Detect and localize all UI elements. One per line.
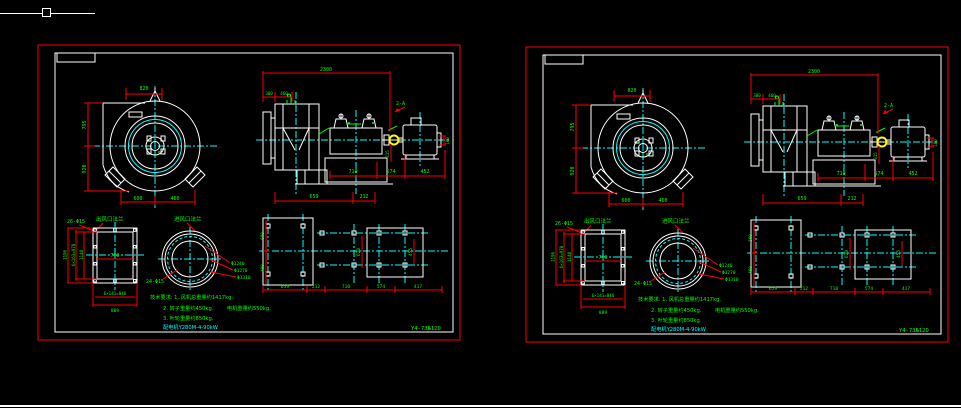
dim-label: 795	[570, 122, 576, 131]
sheet-frame	[526, 47, 948, 342]
dim-label: 1196	[63, 249, 68, 260]
dim-label: 795	[82, 120, 88, 129]
dim-label: 212	[359, 194, 368, 200]
inlet-flange-view: 进风口法兰 24-Φ15 Φ1240 Φ1270 Φ1310	[634, 217, 739, 293]
note-line-motor: 配电机Y280M-4-90kW	[163, 323, 218, 331]
foundation-dimensions: 659 212 710 574 417 600 400 620 455	[748, 222, 930, 295]
dim-label: 300	[753, 93, 761, 98]
sheet-title-label: Y4-73№12D	[899, 328, 929, 334]
note-line: 技术要求: 1. 风机总重量约1417kg.	[638, 295, 721, 303]
outlet-flange-view: 26-Φ15 出风口法兰 1196	[63, 215, 145, 314]
sheet-title-label: Y4-73№12D	[411, 326, 441, 332]
section-mark-label: 2-A	[884, 103, 893, 109]
dim-label: 574	[377, 284, 385, 290]
section-mark-label: 2-A	[396, 101, 405, 107]
window-bottom-edge	[0, 405, 961, 407]
dim-label: 659	[769, 286, 777, 292]
view-label: 进风口法兰	[662, 217, 690, 225]
sheet-frame	[38, 45, 460, 340]
dim-label: 710	[342, 284, 350, 290]
view-label: 出风口法兰	[96, 215, 124, 223]
dim-label: 820	[627, 88, 636, 94]
note-line: 电机重量约550kg.	[715, 306, 759, 314]
dim-label: Φ1310	[237, 275, 251, 281]
dim-label: 710	[836, 171, 845, 177]
holes-label: 24-Φ15	[634, 281, 652, 287]
dim-label: 889	[599, 310, 607, 316]
dim-label: 920	[570, 166, 576, 175]
dim-label: 659	[281, 284, 289, 290]
dim-label: 6×163=978	[559, 245, 564, 268]
dim-label: 6×163=978	[71, 243, 76, 266]
dim-label: Φ1240	[231, 261, 245, 267]
dim-label: 455	[896, 250, 902, 258]
view-label: 出风口法兰	[584, 217, 612, 225]
note-line-motor: 配电机Y280M-4-90kW	[651, 325, 706, 333]
dim-label: Φ1270	[722, 270, 736, 276]
dim-label: 315	[385, 150, 390, 158]
note-line: 3. 叶轮重量约850kg.	[651, 316, 702, 324]
note-line: 2. 转子重量约450kg.	[651, 306, 702, 314]
dim-label: 452	[420, 169, 429, 175]
dim-label: 6×141=846	[592, 293, 615, 298]
dim-label: 2300	[808, 69, 820, 75]
dim-label: Φ1240	[719, 263, 733, 269]
dim-label: 600	[621, 198, 630, 204]
outlet-flange-view: 26-Φ15 出风口法兰 1196	[551, 217, 633, 316]
note-line: 技术要求: 1. 风机总重量约1417kg.	[150, 293, 233, 301]
drawing-sheet-left: 820 795 920 600 460	[37, 44, 461, 342]
note-line: 2. 转子重量约450kg.	[163, 304, 214, 312]
dim-label: 659	[309, 194, 318, 200]
foundation-plan-view: 659 212 710 574 417 600 400 620 455	[259, 214, 449, 293]
dim-label: 574	[865, 286, 873, 292]
dim-label: 710	[830, 286, 838, 292]
dim-label: 6×141=846	[104, 291, 127, 296]
dim-label: 889	[111, 308, 119, 314]
dim-label: 460	[768, 93, 776, 98]
dim-label: 315	[873, 152, 878, 160]
dim-label: 417	[902, 286, 910, 292]
dim-label: 820	[139, 86, 148, 92]
dim-label: 455	[408, 248, 414, 256]
side-view-dimensions: 2300 300 460 2-A 315 100 710 574 452	[751, 69, 938, 206]
dim-label: 460	[280, 91, 288, 96]
dim-label: 2300	[320, 67, 332, 73]
holes-label: 24-Φ15	[146, 279, 164, 285]
dim-label: 600	[260, 232, 265, 240]
dim-label: 659	[797, 196, 806, 202]
side-view-dimensions: 2300 300 460 2-A 315 100 710 574 452	[263, 67, 450, 204]
side-elevation-view: 2300 300 460 2-A 315 100 710 574 452	[256, 67, 451, 204]
dim-label: 417	[414, 284, 422, 290]
foundation-dimensions: 659 212 710 574 417 600 400 620 455	[260, 220, 442, 293]
dim-label: 452	[908, 171, 917, 177]
grip-handle[interactable]	[42, 8, 51, 17]
dim-label: 1140	[79, 249, 84, 260]
dim-label: 620	[356, 248, 362, 256]
dim-label: 760	[598, 255, 607, 261]
dim-label: 400	[748, 266, 753, 274]
foundation-plan-view: 659 212 710 574 417 600 400 620 455	[747, 216, 937, 295]
dim-label: 920	[82, 164, 88, 173]
anchor-bolts	[754, 226, 895, 278]
dim-label: 212	[847, 196, 856, 202]
outlet-flange-dimensions: 1196 6×163=978 1140 760 6×141=846 889	[551, 230, 626, 316]
technical-notes: 技术要求: 1. 风机总重量约1417kg. 2. 转子重量约450kg. 电机…	[638, 295, 759, 333]
technical-notes: 技术要求: 1. 风机总重量约1417kg. 2. 转子重量约450kg. 电机…	[150, 293, 271, 331]
note-line: 3. 叶轮重量约850kg.	[163, 314, 214, 322]
view-label: 进风口法兰	[174, 215, 202, 223]
dim-label: 600	[748, 234, 753, 242]
dim-label: 1196	[551, 251, 556, 262]
fan-front-view: 820 795 920 600 460	[82, 86, 219, 208]
dim-label: 1140	[567, 251, 572, 262]
dim-label: 100	[445, 137, 450, 145]
dim-label: 300	[265, 91, 273, 96]
dim-label: 100	[933, 139, 938, 147]
note-line: 电机重量约550kg.	[227, 304, 271, 312]
inlet-flange-view: 进风口法兰 24-Φ15 Φ1240 Φ1270 Φ1310	[146, 215, 251, 291]
dim-label: 620	[844, 250, 850, 258]
dim-label: 760	[110, 253, 119, 259]
cad-canvas: 820 795 920 600 460	[0, 0, 961, 408]
dim-label: 460	[170, 196, 179, 202]
dim-label: Φ1310	[725, 277, 739, 283]
dim-label: 574	[386, 169, 395, 175]
drawing-sheet-right: 820 795 920 600 460	[525, 46, 949, 344]
outlet-flange-dimensions: 1196 6×163=978 1140 760 6×141=846 889	[63, 228, 138, 314]
dim-label: 600	[133, 196, 142, 202]
holes-label: 26-Φ15	[67, 219, 85, 225]
dim-label: 574	[874, 171, 883, 177]
dim-label: 400	[260, 264, 265, 272]
dim-label: 212	[800, 286, 808, 292]
dim-label: Φ1270	[234, 268, 248, 274]
side-elevation-view: 2300 300 460 2-A 315 100 710 574 452	[744, 69, 939, 206]
anchor-bolts	[266, 224, 407, 276]
dim-label: 212	[312, 284, 320, 290]
dim-label: 710	[348, 169, 357, 175]
dim-label: 460	[658, 198, 667, 204]
holes-label: 26-Φ15	[555, 221, 573, 227]
fan-front-view: 820 795 920 600 460	[570, 88, 707, 210]
